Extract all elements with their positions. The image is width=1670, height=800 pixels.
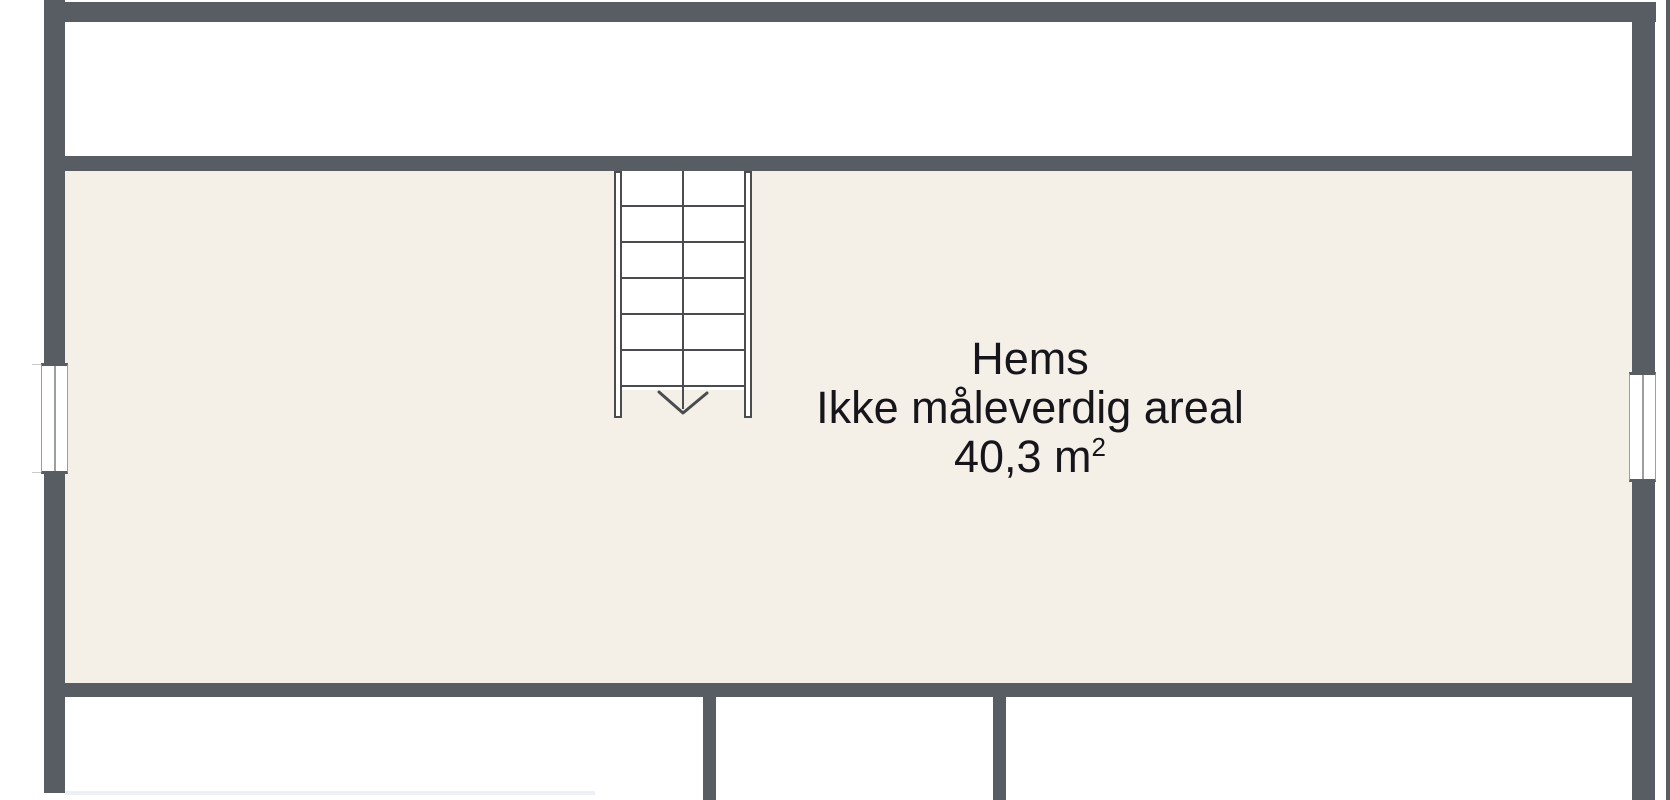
wall-top: [44, 2, 1656, 22]
room-name: Hems: [730, 334, 1330, 383]
window-sill-line: [32, 472, 41, 473]
wall-divider-lower: [44, 683, 1655, 697]
room-area: 40,3 m2: [730, 432, 1330, 481]
faint-furniture-line: [65, 791, 595, 795]
wall-right-clipped-edge: [1666, 0, 1670, 800]
window-left: [41, 363, 68, 474]
wall-divider-upper: [44, 156, 1655, 171]
floor-plan-canvas: Hems Ikke måleverdig areal 40,3 m2: [0, 0, 1670, 800]
window-sill-line: [32, 364, 41, 365]
stairs-down-arrow-icon: [656, 389, 710, 417]
room-label: Hems Ikke måleverdig areal 40,3 m2: [730, 334, 1330, 481]
area-superscript: 2: [1092, 432, 1106, 462]
stair-walkline: [682, 171, 684, 409]
room-note: Ikke måleverdig areal: [730, 383, 1330, 432]
room-bottom-middle: [716, 697, 993, 800]
room-bottom-left: [65, 697, 703, 800]
room-bottom-right: [1006, 697, 1632, 800]
stair-stringer-left: [614, 171, 622, 418]
window-pane-line: [1642, 375, 1644, 479]
window-pane-line: [54, 366, 56, 471]
window-right: [1629, 372, 1656, 482]
roof-void-area: [65, 22, 1632, 156]
wall-partition-bottom-1: [703, 697, 716, 800]
wall-partition-bottom-2: [993, 697, 1006, 800]
